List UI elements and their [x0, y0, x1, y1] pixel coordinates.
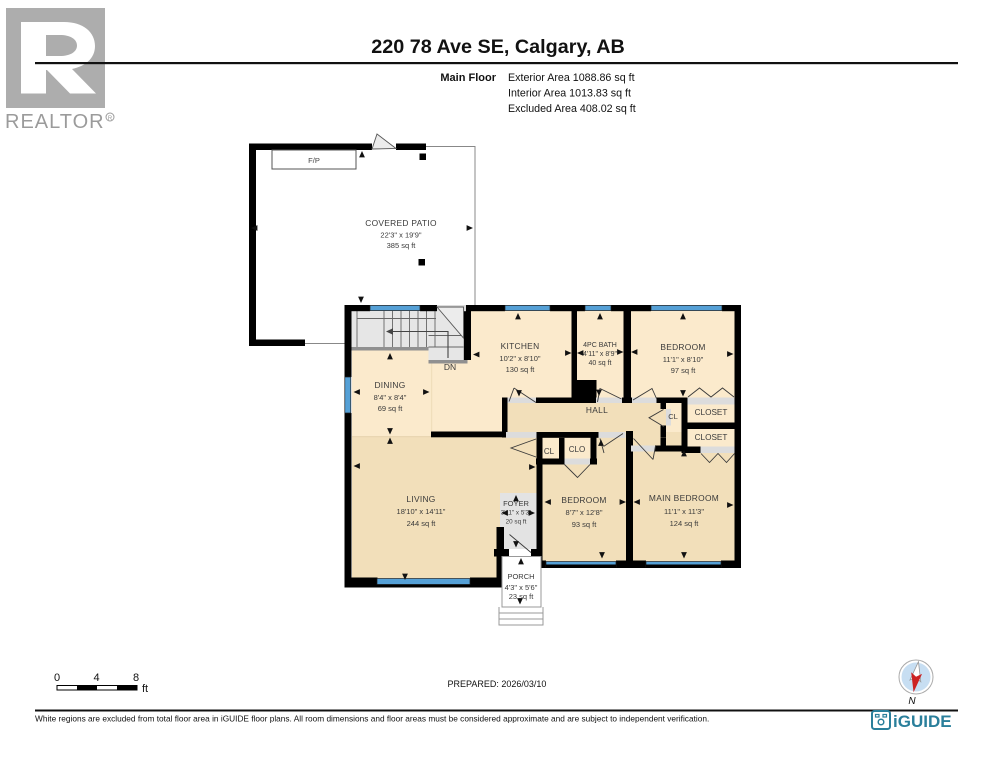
svg-text:DINING: DINING [374, 380, 405, 390]
svg-text:11'1" x 11'3": 11'1" x 11'3" [664, 507, 704, 516]
svg-text:18'10" x 14'11": 18'10" x 14'11" [397, 507, 446, 516]
svg-text:8'7" x 12'8": 8'7" x 12'8" [566, 508, 603, 517]
svg-text:COVERED PATIO: COVERED PATIO [365, 218, 437, 228]
svg-text:97 sq ft: 97 sq ft [671, 366, 697, 375]
svg-text:4PC BATH: 4PC BATH [583, 342, 617, 349]
svg-text:iGUIDE: iGUIDE [893, 712, 952, 731]
svg-text:BEDROOM: BEDROOM [660, 342, 705, 352]
svg-text:385 sq ft: 385 sq ft [387, 241, 417, 250]
svg-text:40 sq ft: 40 sq ft [589, 360, 612, 367]
svg-text:8'4" x 8'4": 8'4" x 8'4" [374, 393, 407, 402]
svg-text:93 sq ft: 93 sq ft [572, 520, 598, 529]
svg-text:CL: CL [668, 412, 678, 421]
svg-text:LIVING: LIVING [406, 494, 435, 504]
svg-text:22'3" x 19'9": 22'3" x 19'9" [380, 231, 421, 240]
svg-text:Exterior Area 1088.86 sq ft: Exterior Area 1088.86 sq ft [508, 72, 635, 84]
svg-text:HALL: HALL [586, 405, 608, 415]
svg-text:ft: ft [142, 683, 148, 695]
svg-text:220 78 Ave SE, Calgary, AB: 220 78 Ave SE, Calgary, AB [371, 36, 625, 58]
svg-text:CL: CL [544, 447, 555, 456]
svg-text:MAIN BEDROOM: MAIN BEDROOM [649, 493, 719, 503]
svg-text:R: R [108, 116, 113, 122]
svg-text:REALTOR: REALTOR [5, 111, 105, 133]
svg-text:0: 0 [54, 672, 60, 684]
svg-text:DN: DN [444, 362, 456, 372]
svg-text:4: 4 [93, 672, 99, 684]
svg-text:PORCH: PORCH [507, 572, 534, 581]
svg-text:CLO: CLO [569, 445, 585, 454]
svg-text:Excluded Area 408.02 sq ft: Excluded Area 408.02 sq ft [508, 103, 636, 115]
svg-text:4'3" x 5'6": 4'3" x 5'6" [505, 583, 538, 592]
svg-text:11'1" x 8'10": 11'1" x 8'10" [663, 355, 704, 364]
svg-text:Main Floor: Main Floor [440, 72, 496, 84]
svg-text:N: N [908, 696, 916, 707]
svg-text:8: 8 [133, 672, 139, 684]
svg-text:BEDROOM: BEDROOM [561, 495, 606, 505]
svg-text:PREPARED: 2026/03/10: PREPARED: 2026/03/10 [448, 679, 547, 689]
svg-text:10'2" x 8'10": 10'2" x 8'10" [499, 354, 540, 363]
svg-text:4'11" x 8'9": 4'11" x 8'9" [583, 351, 617, 358]
svg-text:White regions are excluded fro: White regions are excluded from total fl… [35, 714, 709, 724]
svg-text:F/P: F/P [308, 156, 320, 165]
svg-text:69 sq ft: 69 sq ft [378, 404, 404, 413]
svg-text:124 sq ft: 124 sq ft [670, 519, 700, 528]
svg-text:KITCHEN: KITCHEN [501, 341, 540, 351]
svg-text:CLOSET: CLOSET [695, 408, 728, 417]
svg-text:CLOSET: CLOSET [695, 433, 728, 442]
svg-text:20 sq ft: 20 sq ft [506, 519, 527, 526]
svg-text:244 sq ft: 244 sq ft [407, 519, 437, 528]
svg-text:130 sq ft: 130 sq ft [506, 365, 536, 374]
svg-text:Interior Area 1013.83 sq ft: Interior Area 1013.83 sq ft [508, 88, 631, 100]
